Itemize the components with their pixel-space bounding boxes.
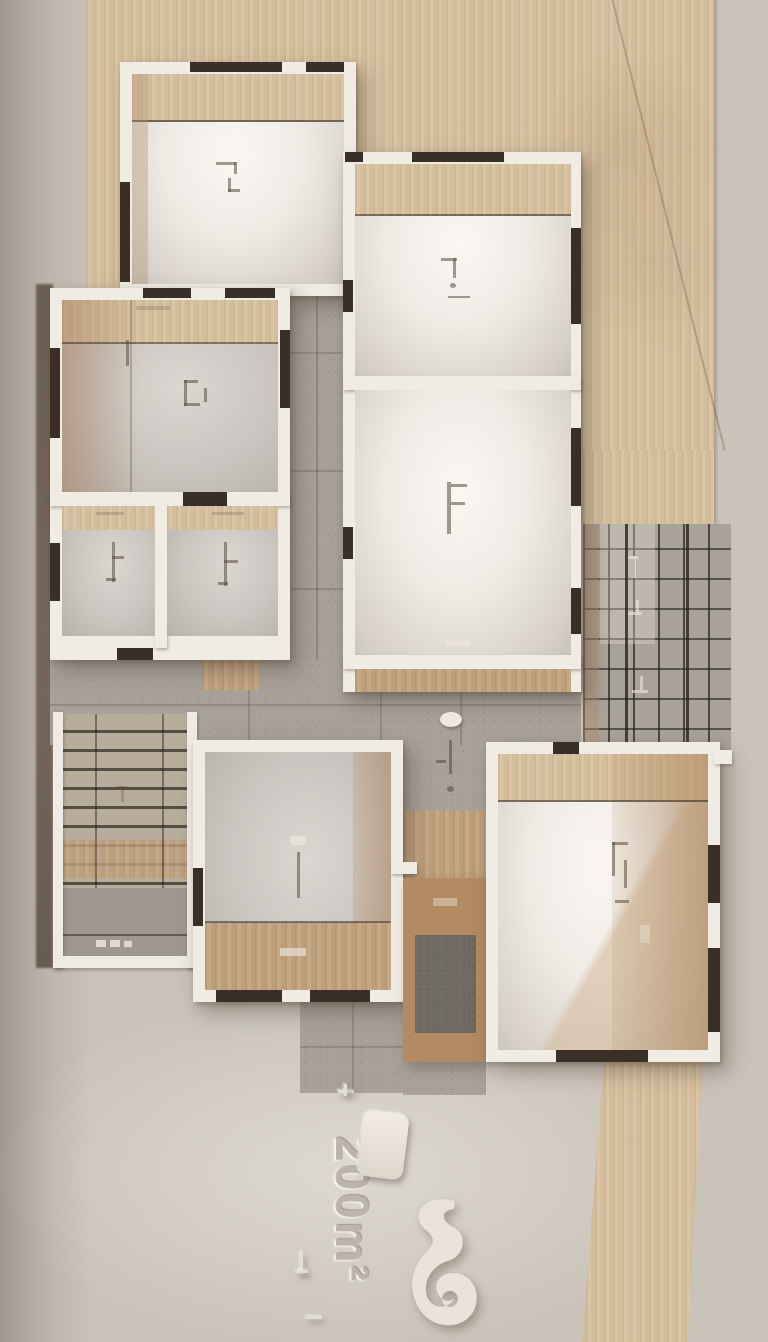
- garbled-annotation: [216, 162, 236, 165]
- garbled-annotation: [290, 836, 306, 845]
- window-opening: [306, 62, 344, 72]
- garbled-annotation: [124, 941, 132, 947]
- stair-wood-landing-strip: [63, 840, 187, 878]
- stair-stringer: [95, 714, 97, 888]
- wood-edge-shadow: [714, 0, 719, 524]
- room-top-right-ledge-line: [355, 214, 571, 216]
- corridor-grout: [316, 288, 318, 660]
- floor-plan-render: 200m²: [0, 0, 768, 1342]
- staircase: [53, 712, 199, 968]
- garbled-annotation: [106, 578, 116, 581]
- wall-stub: [714, 750, 732, 764]
- garbled-annotation: [446, 640, 470, 646]
- terrace-grout: [300, 1046, 403, 1048]
- room-top-left-wood-edge: [132, 74, 148, 284]
- window-opening: [556, 1050, 648, 1062]
- room-center-bottom-wall: [343, 655, 581, 669]
- garbled-annotation: [228, 189, 240, 192]
- garbled-annotation: [297, 852, 300, 898]
- embossed-tick: [344, 1084, 347, 1096]
- garbled-annotation: [447, 786, 454, 792]
- below-courtyard-gray: [403, 1062, 486, 1095]
- room-bottom-right: [486, 742, 720, 1062]
- pergola-post: [625, 524, 628, 760]
- room-bottom-center-ledge-line: [205, 921, 391, 923]
- garbled-annotation: [633, 556, 636, 578]
- embossed-tick: [306, 1316, 322, 1319]
- courtyard-gravel: [415, 935, 476, 1033]
- garbled-annotation: [204, 388, 207, 402]
- garbled-annotation: [640, 676, 643, 690]
- terrace-wood-strip: [583, 450, 714, 524]
- garbled-annotation: [632, 690, 648, 693]
- garbled-annotation: [628, 612, 642, 615]
- window-opening: [708, 845, 720, 903]
- embossed-tick: [296, 1270, 308, 1273]
- window-opening: [310, 990, 370, 1002]
- garbled-annotation: [451, 484, 467, 487]
- window-opening: [225, 288, 275, 298]
- garbled-annotation: [628, 556, 638, 559]
- corridor-grout: [290, 470, 343, 472]
- window-opening: [50, 348, 60, 438]
- garbled-annotation: [612, 842, 615, 876]
- garbled-annotation: [184, 403, 200, 406]
- window-opening: [708, 948, 720, 1032]
- window-opening: [345, 152, 363, 162]
- embossed-pill-shape: [356, 1109, 410, 1180]
- room-mid-left-wood-left: [62, 300, 140, 492]
- divider-wall-vertical: [155, 506, 167, 648]
- garbled-annotation: [453, 258, 456, 278]
- door-opening: [280, 330, 290, 408]
- hall-door-marker-ellipse: [440, 712, 462, 727]
- garbled-annotation: [624, 860, 627, 888]
- garbled-annotation: [615, 900, 629, 903]
- hall-grout: [50, 704, 581, 706]
- garbled-annotation: [447, 482, 451, 534]
- room-center-threshold-wood: [355, 669, 571, 692]
- stair-stringer: [162, 714, 164, 888]
- garbled-annotation: [448, 296, 470, 298]
- pergola-post: [686, 524, 689, 760]
- room-small-left-wood: [62, 506, 155, 530]
- room-bottom-center-wood-bottom: [205, 922, 391, 990]
- divider-wall: [50, 492, 290, 506]
- room-mid-left-ledge-line: [62, 342, 278, 344]
- window-opening: [571, 588, 581, 634]
- garbled-annotation: [218, 582, 228, 585]
- garbled-annotation: [110, 940, 120, 947]
- room-top-right-block: [343, 152, 581, 692]
- door-opening: [553, 742, 579, 754]
- garbled-annotation: [224, 560, 238, 563]
- corridor-grout: [290, 588, 343, 590]
- garbled-annotation: [449, 740, 452, 774]
- garbled-annotation: [640, 925, 650, 943]
- garbled-annotation: [436, 760, 446, 763]
- garbled-annotation: [280, 948, 306, 956]
- window-opening: [143, 288, 191, 298]
- room-small-right-wood: [167, 506, 278, 530]
- garbled-annotation: [450, 283, 456, 288]
- window-opening: [190, 62, 282, 72]
- garbled-annotation: [433, 898, 457, 906]
- room-center-floor: [355, 390, 571, 655]
- garbled-annotation: [121, 786, 124, 802]
- garbled-annotation: [126, 340, 129, 366]
- door-opening: [343, 280, 353, 312]
- wall-stub: [391, 862, 417, 874]
- garbled-annotation: [112, 556, 124, 559]
- window-opening: [50, 543, 60, 601]
- room-mid-left-block: [50, 288, 290, 660]
- garbled-annotation: [224, 542, 227, 586]
- room-top-left-wood-strip: [132, 74, 344, 122]
- room-mid-left-grout: [130, 300, 132, 492]
- garbled-annotation: [636, 600, 639, 612]
- room-bottom-right-ledge-line: [498, 800, 708, 802]
- garbled-annotation: [96, 940, 106, 947]
- garbled-annotation: [451, 502, 465, 505]
- garbled-annotation: [212, 512, 244, 515]
- hall-grout: [380, 692, 382, 745]
- room-top-left-ledge-line: [132, 120, 344, 122]
- window-opening: [571, 428, 581, 506]
- garbled-annotation: [136, 306, 170, 310]
- room-top-left: [120, 62, 356, 296]
- pergola-wood-edge: [583, 524, 599, 760]
- embossed-hook-shape: [383, 1195, 493, 1342]
- stair-wall-left: [53, 712, 63, 968]
- wood-smudge: [560, 160, 740, 360]
- window-opening: [571, 228, 581, 324]
- divider-wall: [343, 376, 581, 390]
- room-top-right-wood-strip: [355, 164, 571, 216]
- court-passage-gray: [403, 745, 486, 810]
- garbled-annotation: [112, 542, 115, 582]
- window-opening: [216, 990, 282, 1002]
- window-opening: [117, 648, 153, 660]
- stair-wall-bottom: [53, 956, 197, 968]
- corridor-grout: [290, 352, 343, 354]
- window-opening: [120, 182, 130, 282]
- garbled-annotation: [234, 162, 237, 174]
- courtyard-shaft: [403, 878, 486, 1062]
- window-opening: [412, 152, 504, 162]
- door-opening: [193, 868, 203, 926]
- room-bottom-center: [193, 740, 403, 1002]
- door-lintel: [183, 492, 227, 506]
- garbled-annotation: [96, 512, 124, 515]
- stair-landing-line: [63, 934, 187, 936]
- door-opening: [343, 527, 353, 559]
